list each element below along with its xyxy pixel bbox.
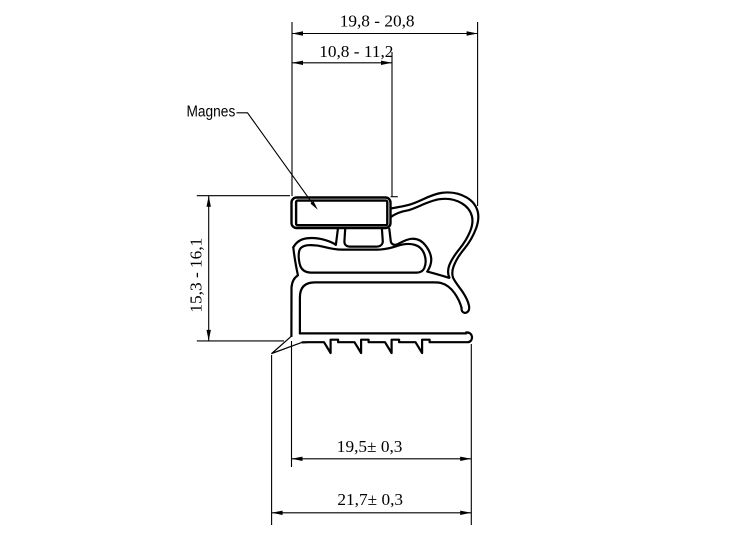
svg-text:21,7± 0,3: 21,7± 0,3 — [337, 490, 403, 509]
svg-text:19,8 - 20,8: 19,8 - 20,8 — [340, 12, 415, 31]
svg-text:Magnes: Magnes — [187, 104, 236, 121]
svg-text:19,5± 0,3: 19,5± 0,3 — [337, 437, 403, 456]
svg-text:10,8 - 11,2: 10,8 - 11,2 — [319, 42, 393, 61]
svg-text:15,3 - 16,1: 15,3 - 16,1 — [186, 238, 205, 313]
